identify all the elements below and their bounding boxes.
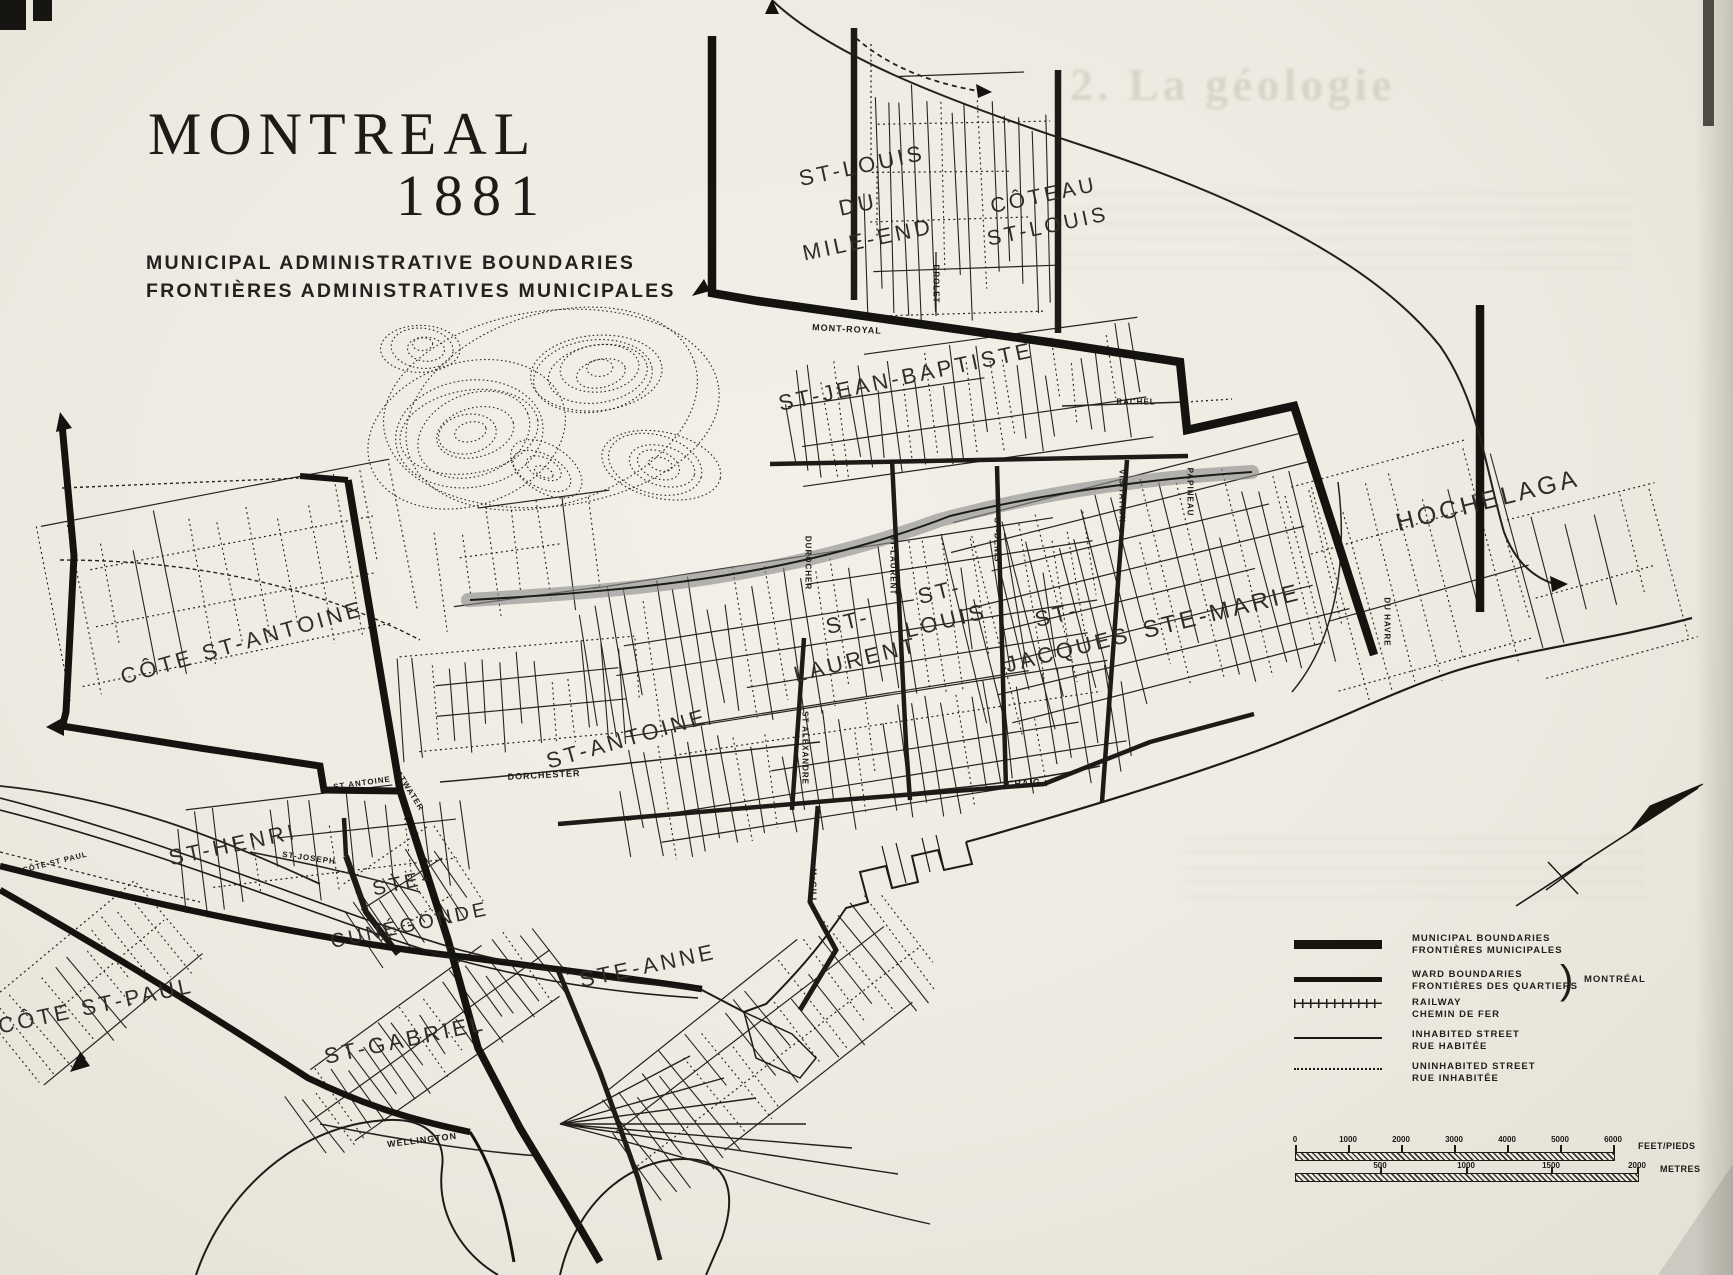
street-label-st-laurent-st: ST-LAURENT — [889, 535, 898, 596]
mount-royal-contours — [349, 272, 731, 545]
legend-brace: ) — [1560, 958, 1573, 1003]
street-label-st-alexandre: ST ALEXANDRE — [801, 711, 810, 785]
legend-note-montreal: MONTRÉAL — [1584, 974, 1646, 985]
legend-label: MUNICIPAL BOUNDARIESFRONTIÈRES MUNICIPAL… — [1412, 933, 1563, 957]
street-label-mcgill: McGILL — [809, 868, 818, 903]
page-edge-shadow — [1695, 0, 1733, 1275]
bleedthrough-text: 2. La géologie — [1070, 58, 1396, 111]
street-label-drolet: DROLET — [932, 265, 941, 304]
map-year: 1881 — [396, 162, 548, 229]
legend-sample-railway — [1294, 999, 1382, 1008]
street-label-papineau: PAPINEAU — [1186, 468, 1195, 517]
scanned-map-page: 2. La géologie — [0, 0, 1733, 1275]
bleedthrough-rows — [1185, 836, 1645, 902]
legend-label: UNINHABITED STREETRUE INHABITÉE — [1412, 1061, 1536, 1085]
legend-label: INHABITED STREETRUE HABITÉE — [1412, 1029, 1520, 1053]
legend-sample-municipal — [1294, 940, 1382, 949]
legend-sample-inhabited — [1294, 1037, 1382, 1039]
street-label-visitation: VISITATION — [1118, 469, 1127, 523]
street-label-durocher: DUROCHER — [804, 536, 813, 590]
map-subtitle-en: MUNICIPAL ADMINISTRATIVE BOUNDARIES — [146, 252, 635, 275]
legend-sample-ward — [1294, 977, 1382, 982]
scale-bar-metres — [1295, 1173, 1639, 1182]
railways — [0, 0, 1554, 1224]
map-title: MONTREAL — [148, 100, 537, 169]
street-label-st-denis: ST-DENIS — [993, 518, 1002, 563]
feet-unit: FEET/PIEDS — [1638, 1141, 1696, 1151]
legend-label: WARD BOUNDARIESFRONTIÈRES DES QUARTIERS — [1412, 969, 1578, 993]
bleedthrough-rows — [1060, 192, 1630, 274]
legend-sample-uninhabited — [1294, 1068, 1382, 1070]
legend-label: RAILWAYCHEMIN DE FER — [1412, 997, 1500, 1021]
scale-bar-feet — [1295, 1152, 1615, 1161]
street-label-du-havre: DU HAVRE — [1383, 597, 1392, 646]
map-subtitle-fr: FRONTIÈRES ADMINISTRATIVES MUNICIPALES — [146, 280, 676, 303]
street-label-rachel: RACHEL — [1116, 398, 1155, 407]
